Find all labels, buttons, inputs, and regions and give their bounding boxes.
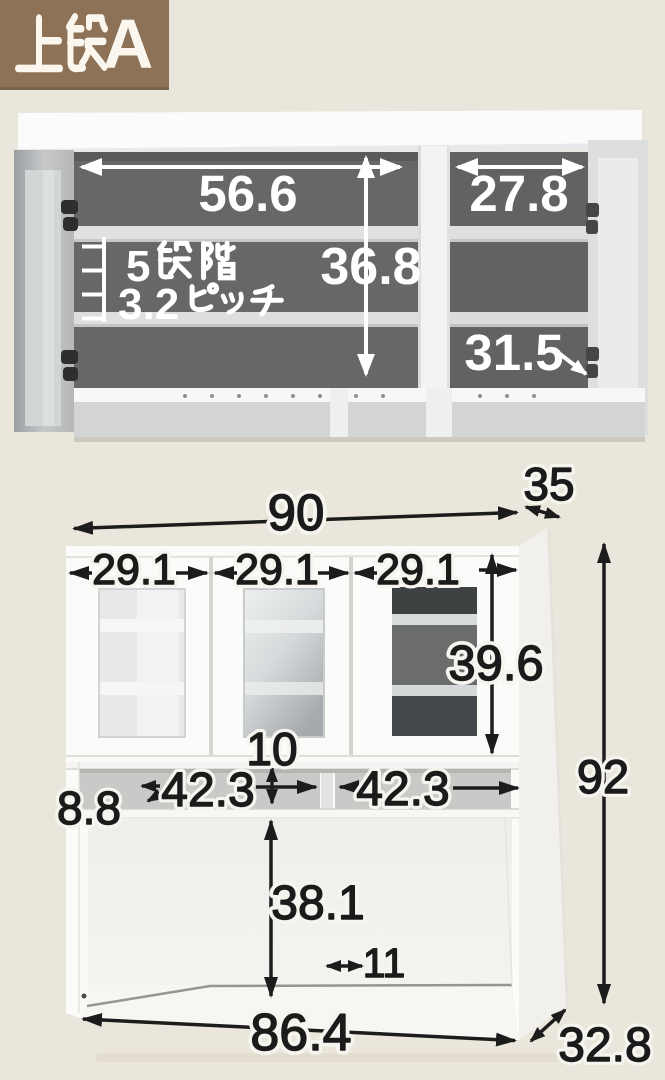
svg-text:3.2: 3.2 (118, 280, 179, 329)
svg-text:42.3: 42.3 (161, 764, 254, 817)
svg-text:29.1: 29.1 (92, 546, 176, 594)
svg-text:27.8: 27.8 (469, 165, 568, 222)
svg-text:11: 11 (363, 940, 406, 986)
svg-text:29.1: 29.1 (376, 546, 460, 594)
svg-text:86.4: 86.4 (250, 1004, 351, 1062)
svg-text:38.1: 38.1 (271, 877, 364, 930)
svg-text:29.1: 29.1 (235, 546, 319, 594)
svg-text:39.6: 39.6 (448, 637, 543, 691)
svg-text:90: 90 (268, 484, 325, 541)
svg-text:A: A (103, 5, 154, 83)
svg-text:36.8: 36.8 (320, 238, 421, 296)
svg-text:56.6: 56.6 (198, 165, 297, 222)
svg-text:42.3: 42.3 (356, 763, 449, 816)
svg-text:31.5: 31.5 (464, 324, 563, 381)
svg-text:32.8: 32.8 (558, 1019, 651, 1072)
svg-text:35: 35 (523, 458, 574, 510)
svg-text:8.8: 8.8 (57, 782, 121, 834)
svg-text:92: 92 (577, 750, 629, 803)
